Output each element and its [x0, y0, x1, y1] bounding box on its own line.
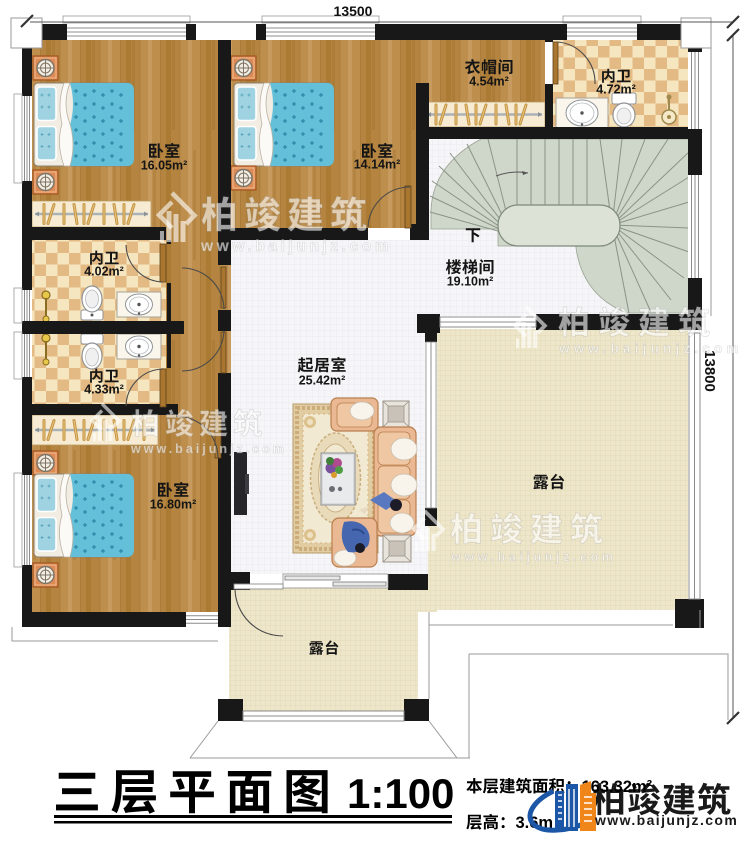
svg-text:1:100: 1:100 — [347, 770, 454, 817]
svg-text:13500: 13500 — [334, 3, 373, 19]
svg-text:www.baijunjz.com: www.baijunjz.com — [558, 341, 743, 356]
svg-text:www.baijunjz.com: www.baijunjz.com — [594, 812, 738, 828]
svg-text:4.54m²: 4.54m² — [469, 75, 509, 89]
svg-text:4.33m²: 4.33m² — [84, 383, 124, 397]
svg-text:www.baijunjz.com: www.baijunjz.com — [130, 442, 287, 456]
svg-text:16.05m²: 16.05m² — [141, 159, 188, 173]
svg-text:www.baijunjz.com: www.baijunjz.com — [450, 550, 616, 564]
svg-text:14.14m²: 14.14m² — [354, 158, 401, 172]
svg-text:4.02m²: 4.02m² — [84, 265, 124, 279]
svg-text:13800: 13800 — [701, 350, 718, 392]
svg-text:16.80m²: 16.80m² — [150, 498, 197, 512]
svg-text:www.baijunjz.com: www.baijunjz.com — [200, 238, 392, 255]
svg-text:25.42m²: 25.42m² — [299, 374, 346, 388]
svg-text:4.72m²: 4.72m² — [596, 83, 636, 97]
svg-text:19.10m²: 19.10m² — [447, 275, 494, 289]
